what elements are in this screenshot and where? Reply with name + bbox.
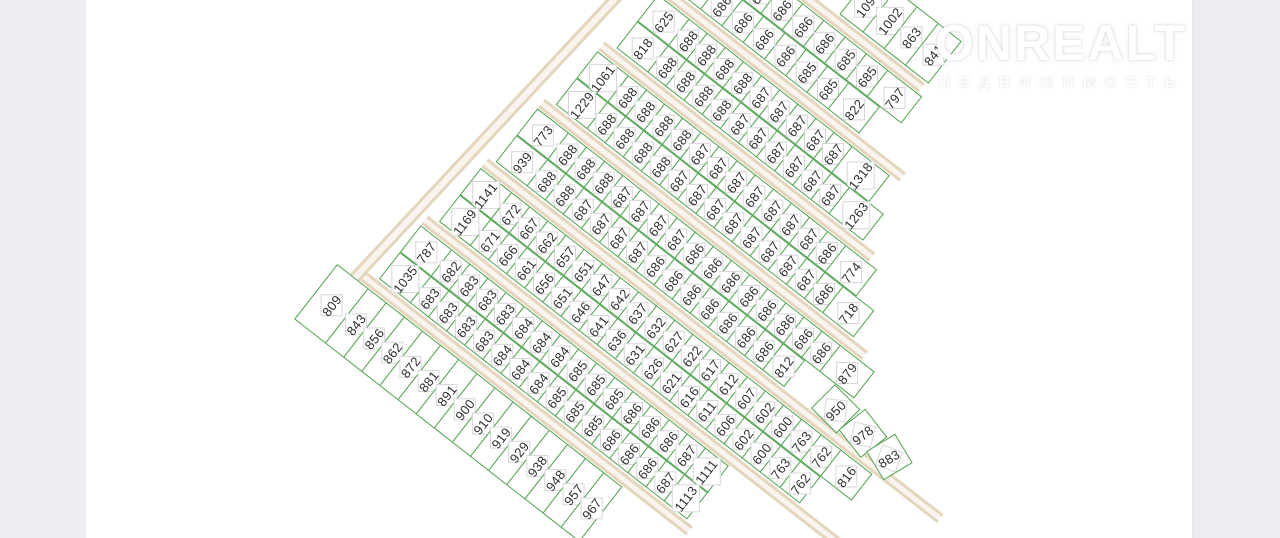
- plot-label-box: 879: [836, 362, 858, 384]
- plot-label-box: 1111: [693, 458, 721, 486]
- plot-number: 797: [883, 85, 907, 111]
- plot-label-box: 797: [884, 87, 906, 109]
- plot-label-box: 978: [849, 421, 876, 448]
- plot-number: 774: [839, 259, 863, 285]
- plot-number: 809: [320, 292, 344, 318]
- plot-number: 879: [835, 360, 859, 386]
- plot-label-box: 841: [922, 44, 944, 66]
- page-left-gutter: [0, 0, 87, 538]
- plot-label-box: 1169: [451, 208, 479, 236]
- plot-number: 841: [921, 42, 945, 68]
- plot-label-box: 1113: [672, 484, 700, 512]
- plot-number: 718: [836, 300, 860, 326]
- plot-label-box: 1318: [847, 161, 875, 189]
- plot-number: 967: [580, 496, 604, 522]
- plot-label-box: 822: [843, 98, 865, 120]
- plot-label-box: 818: [632, 37, 654, 59]
- plot-number: 812: [772, 354, 796, 380]
- plot-label-box: 718: [837, 302, 859, 324]
- plot-label-box: 774: [840, 261, 862, 283]
- plot-number: 1263: [842, 199, 871, 231]
- plot-label-box: 883: [875, 444, 903, 472]
- plot-label-box: 939: [511, 151, 533, 173]
- plot-number: 1035: [391, 263, 420, 295]
- plot-number: 625: [652, 9, 676, 35]
- plot-label-box: 816: [835, 465, 857, 487]
- plot-number: 950: [823, 398, 848, 423]
- plot-label-box: 950: [823, 398, 848, 423]
- plot-label-box: 1141: [472, 181, 500, 209]
- plot-label-box: 967: [581, 497, 603, 519]
- map-viewport[interactable]: 1091100286384168668668668668568579710686…: [86, 0, 1193, 538]
- plot-number: 1111: [693, 457, 720, 486]
- plot-number: 1061: [589, 62, 618, 94]
- plot-number: 883: [876, 447, 902, 470]
- plot-number: 787: [414, 239, 438, 265]
- plot-number: 1318: [846, 160, 875, 192]
- plot-number: 1169: [451, 206, 479, 237]
- plot-number: 773: [531, 123, 555, 149]
- plot-number: 939: [510, 149, 534, 175]
- plot-label-box: 1035: [391, 265, 419, 293]
- plot-label-box: 809: [321, 294, 343, 316]
- plot-number: 818: [631, 35, 655, 61]
- plot-label-box: 1229: [568, 91, 596, 119]
- plot-label-box: 787: [415, 241, 437, 263]
- plot-label-box: 812: [773, 356, 795, 378]
- plot-number: 822: [842, 96, 866, 122]
- plot-label-box: 1263: [842, 201, 870, 229]
- page-right-gutter: [1192, 0, 1280, 538]
- plot-number: 978: [850, 423, 876, 447]
- plot-label-box: 762: [789, 473, 811, 495]
- plot-number: 1141: [472, 180, 500, 211]
- plot-number: 1229: [568, 89, 597, 121]
- plot-label-box: 625: [653, 11, 675, 33]
- page: 1091100286384168668668668668568579710686…: [0, 0, 1280, 538]
- plot-label-box: 773: [532, 124, 554, 146]
- plot-label-box: 1061: [589, 64, 617, 92]
- plot-number: 762: [788, 471, 812, 497]
- plot-number: 816: [834, 464, 858, 490]
- plot-number: 1113: [672, 483, 700, 513]
